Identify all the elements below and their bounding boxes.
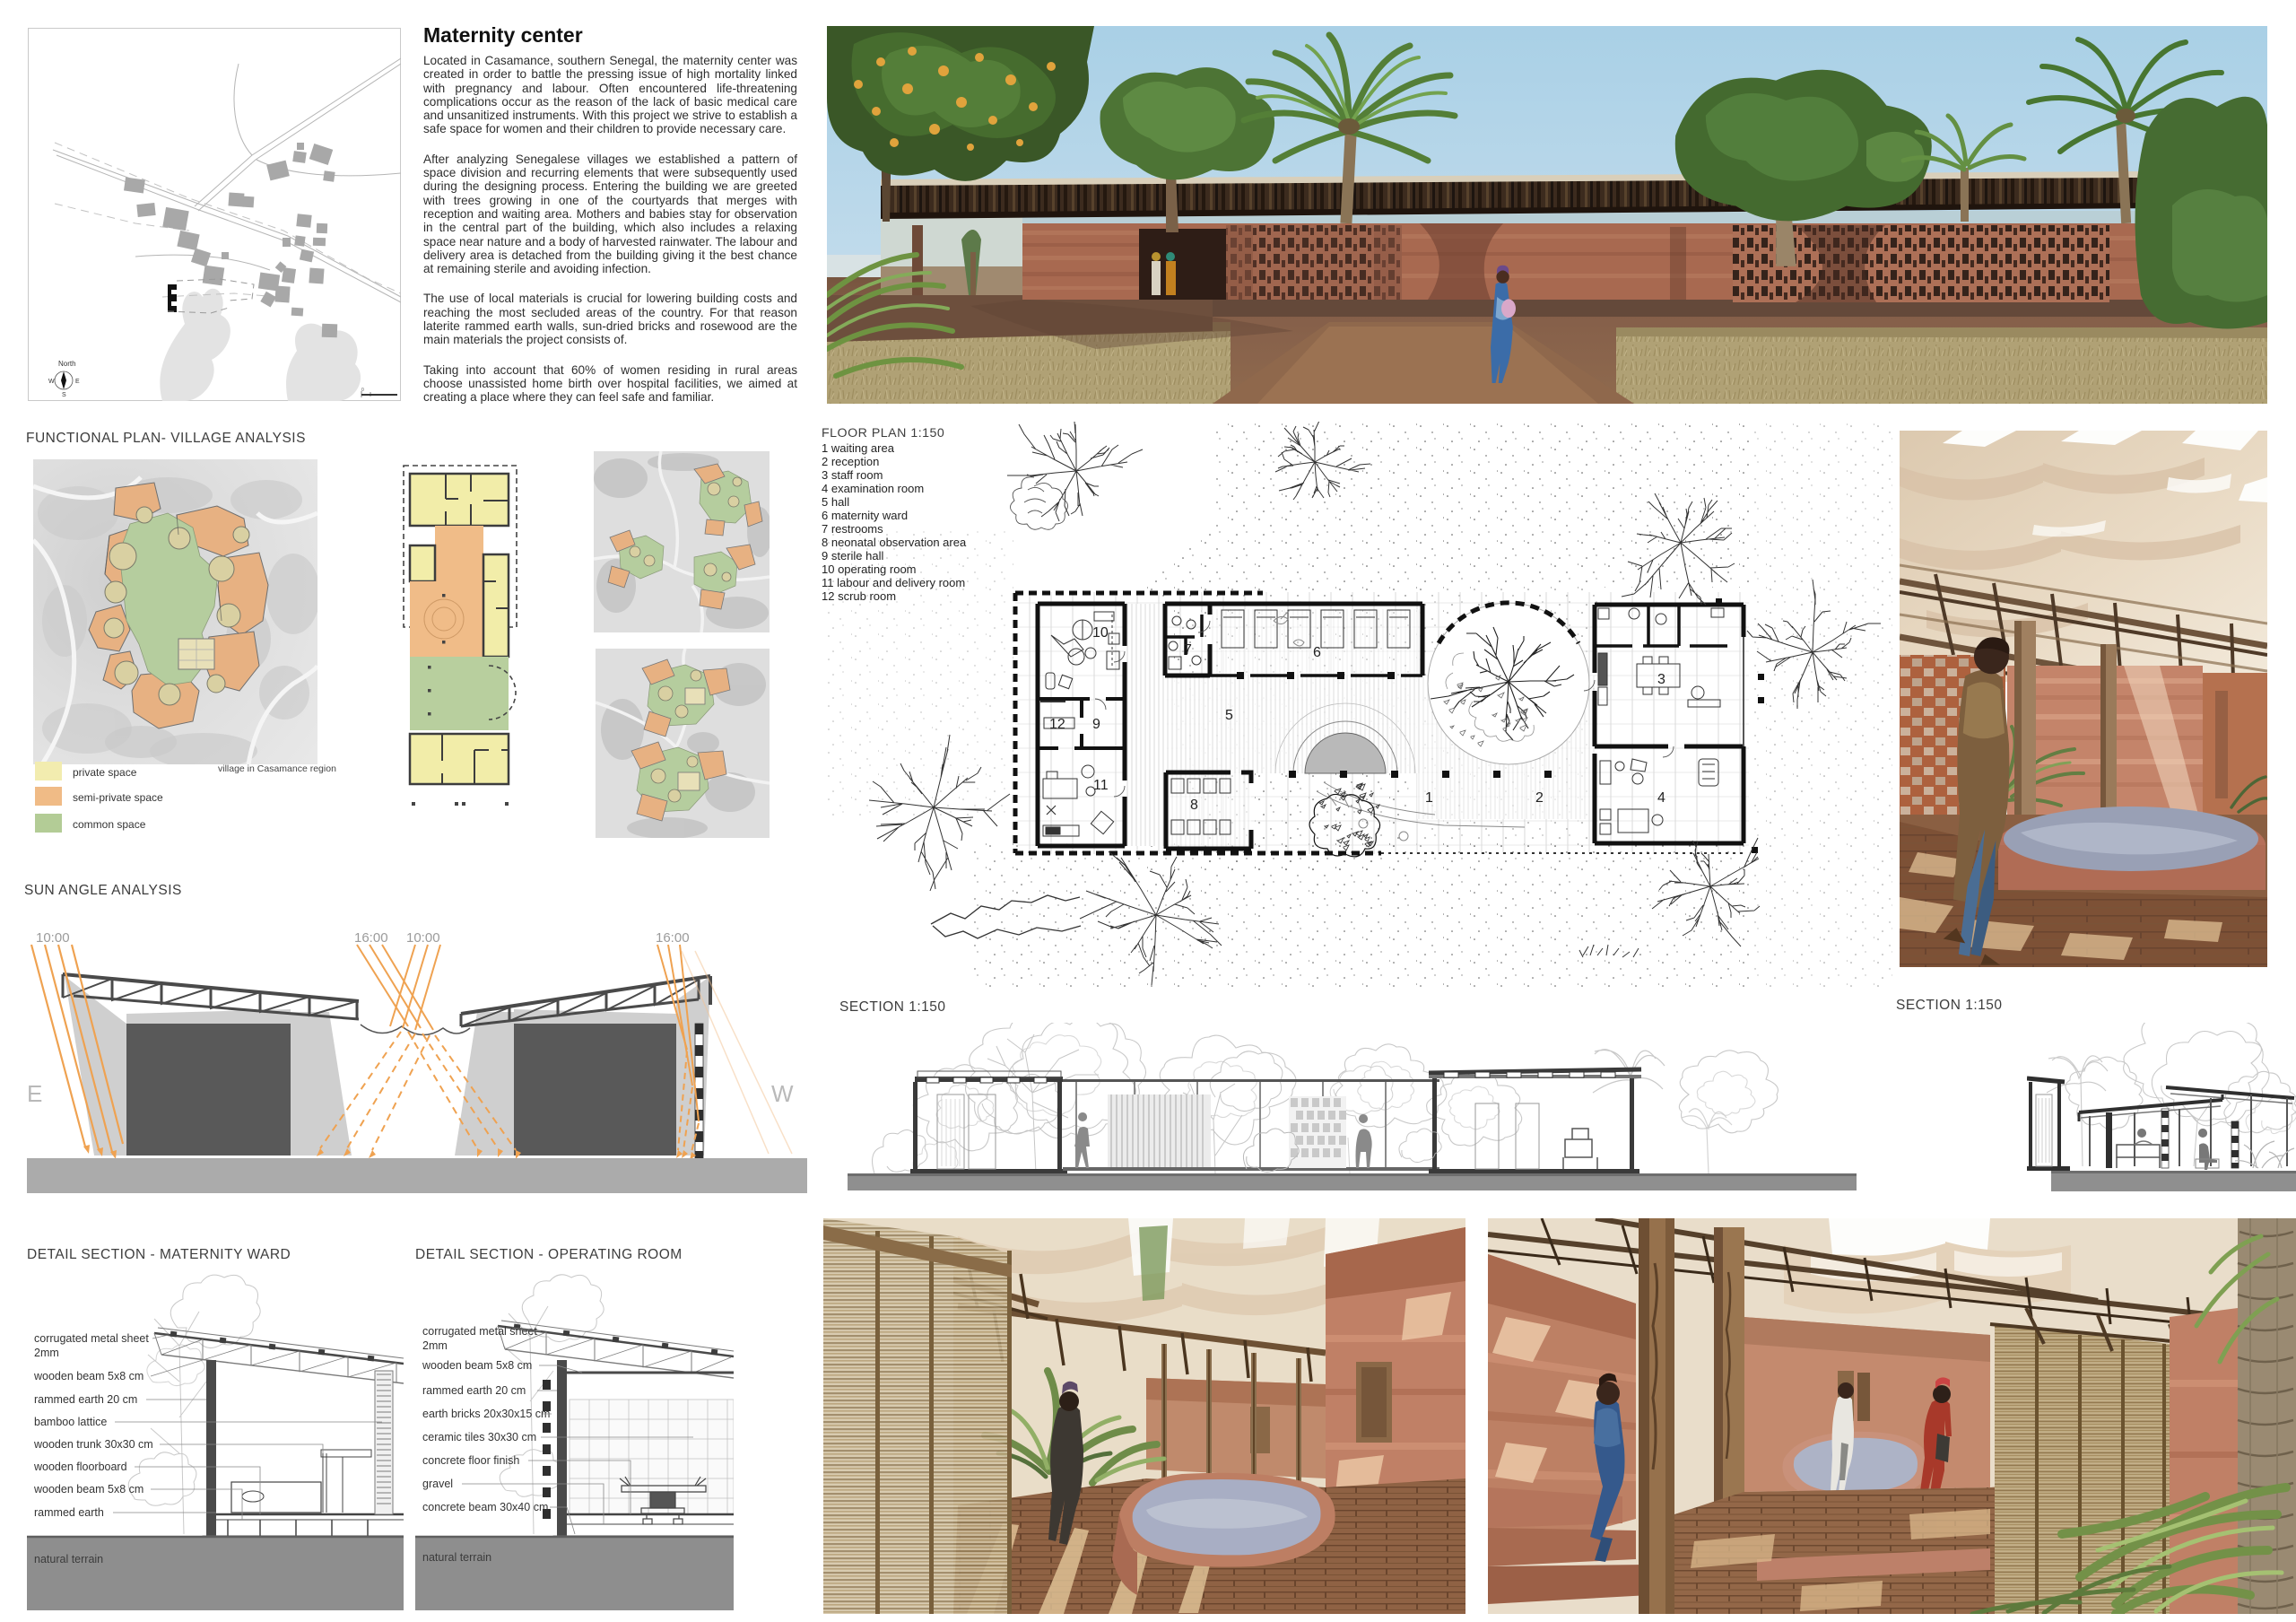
svg-text:gravel: gravel	[422, 1478, 453, 1490]
svg-text:16:00: 16:00	[354, 930, 388, 946]
svg-text:E: E	[27, 1080, 42, 1107]
svg-text:W: W	[771, 1080, 794, 1107]
svg-text:earth bricks 20x30x15 cm: earth bricks 20x30x15 cm	[422, 1408, 550, 1420]
svg-text:2mm: 2mm	[422, 1339, 448, 1352]
svg-text:12: 12	[1049, 717, 1065, 732]
svg-text:2mm: 2mm	[34, 1347, 59, 1359]
svg-text:5: 5	[1225, 708, 1233, 723]
svg-text:S: S	[62, 392, 66, 398]
svg-text:bamboo lattice: bamboo lattice	[34, 1416, 107, 1428]
svg-text:10:00: 10:00	[406, 930, 440, 946]
svg-text:ceramic tiles 30x30 cm: ceramic tiles 30x30 cm	[422, 1431, 536, 1443]
svg-text:wooden floorboard: wooden floorboard	[33, 1461, 127, 1473]
svg-text:10: 10	[1092, 625, 1109, 641]
svg-text:6: 6	[1313, 645, 1321, 660]
svg-text:W: W	[48, 379, 55, 385]
svg-text:corrugated metal sheet: corrugated metal sheet	[422, 1325, 537, 1338]
svg-text:concrete floor finish: concrete floor finish	[422, 1454, 519, 1467]
svg-text:wooden beam 5x8 cm: wooden beam 5x8 cm	[33, 1483, 143, 1496]
svg-text:E: E	[75, 379, 80, 385]
svg-text:4: 4	[1657, 790, 1665, 806]
svg-text:10:00: 10:00	[36, 930, 70, 946]
svg-text:3: 3	[1657, 672, 1665, 687]
svg-text:concrete beam 30x40 cm: concrete beam 30x40 cm	[422, 1501, 548, 1513]
svg-text:0: 0	[361, 388, 364, 393]
svg-text:11: 11	[1093, 778, 1109, 793]
svg-text:wooden beam 5x8 cm: wooden beam 5x8 cm	[422, 1359, 532, 1372]
svg-text:wooden beam 5x8 cm: wooden beam 5x8 cm	[33, 1370, 143, 1382]
svg-text:corrugated metal sheet: corrugated metal sheet	[34, 1332, 149, 1345]
svg-text:rammed earth: rammed earth	[34, 1506, 104, 1519]
svg-text:rammed earth 20 cm: rammed earth 20 cm	[422, 1384, 526, 1397]
svg-text:9: 9	[1092, 717, 1100, 732]
svg-text:natural terrain: natural terrain	[34, 1553, 103, 1565]
svg-text:7: 7	[1184, 642, 1192, 658]
svg-text:rammed earth 20 cm: rammed earth 20 cm	[34, 1393, 137, 1406]
svg-text:natural terrain: natural terrain	[422, 1551, 491, 1564]
svg-text:16:00: 16:00	[656, 930, 690, 946]
svg-text:North: North	[58, 360, 76, 368]
svg-text:wooden trunk 30x30 cm: wooden trunk 30x30 cm	[33, 1438, 153, 1451]
svg-text:8: 8	[1190, 798, 1198, 813]
svg-text:1: 1	[1425, 790, 1433, 806]
svg-text:2: 2	[1535, 790, 1544, 806]
